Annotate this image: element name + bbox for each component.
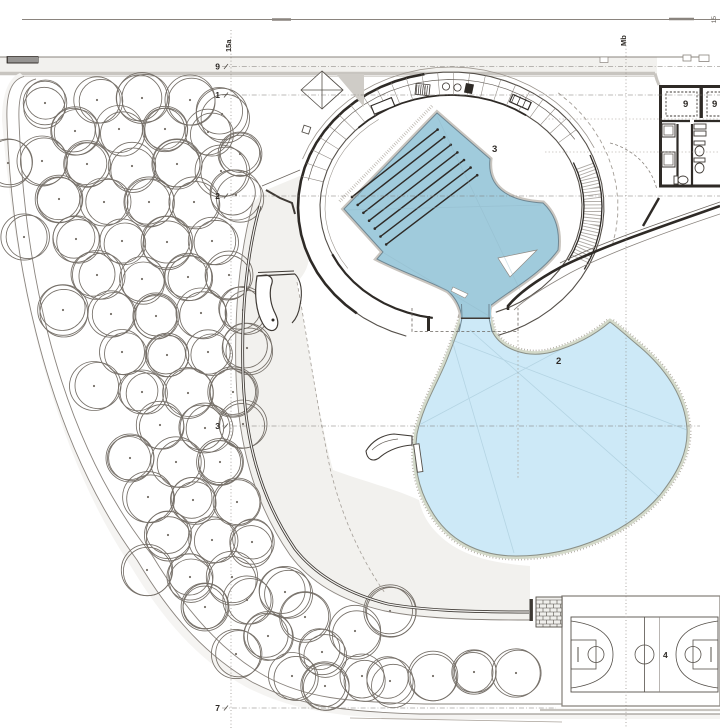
svg-text:3: 3 [492,144,497,155]
svg-text:2: 2 [215,191,220,201]
svg-text:1: 1 [215,90,220,100]
svg-text:3: 3 [215,421,220,431]
svg-text:Mb: Mb [619,35,628,46]
svg-text:4: 4 [663,650,668,660]
svg-text:2: 2 [556,356,561,367]
svg-text:15a: 15a [224,39,233,52]
svg-text:9: 9 [712,99,717,110]
svg-text:15: 15 [711,16,718,24]
svg-text:7: 7 [215,703,220,713]
svg-text:9: 9 [683,99,688,110]
svg-text:9: 9 [215,62,220,72]
